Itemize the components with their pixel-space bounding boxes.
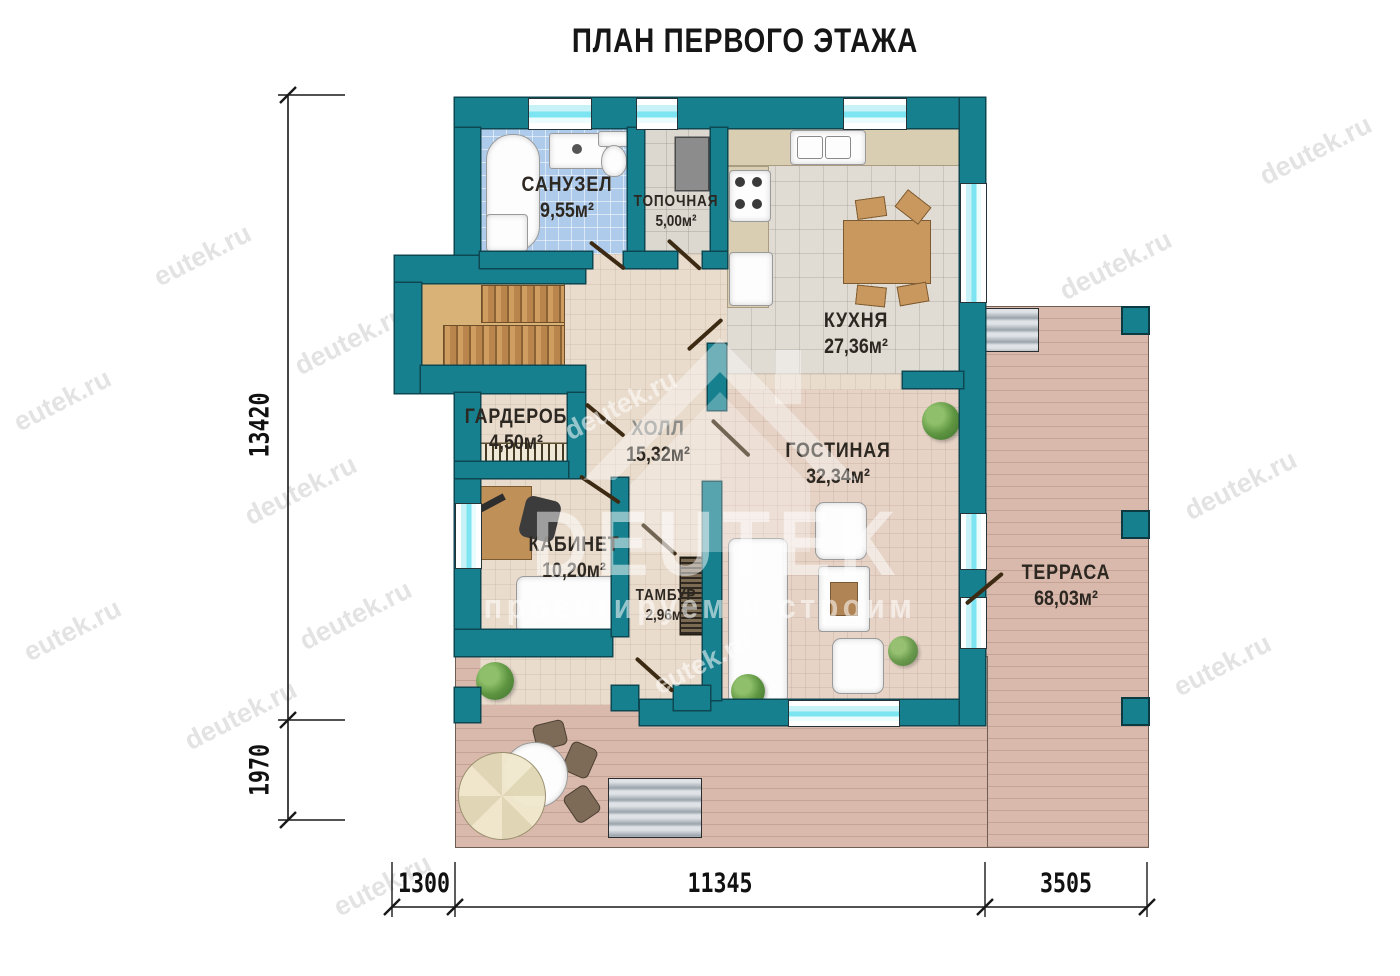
dim-height-main: 13420 [245, 392, 276, 457]
dimension-lines [0, 0, 1400, 976]
dim-width-middle: 11345 [687, 868, 752, 899]
dim-width-right: 3505 [1040, 868, 1092, 899]
floorplan-page: ПЛАН ПЕРВОГО ЭТАЖА eutek.ru deutek.ru eu… [0, 0, 1400, 976]
dim-width-left: 1300 [398, 868, 450, 899]
dim-height-lower: 1970 [245, 744, 276, 796]
